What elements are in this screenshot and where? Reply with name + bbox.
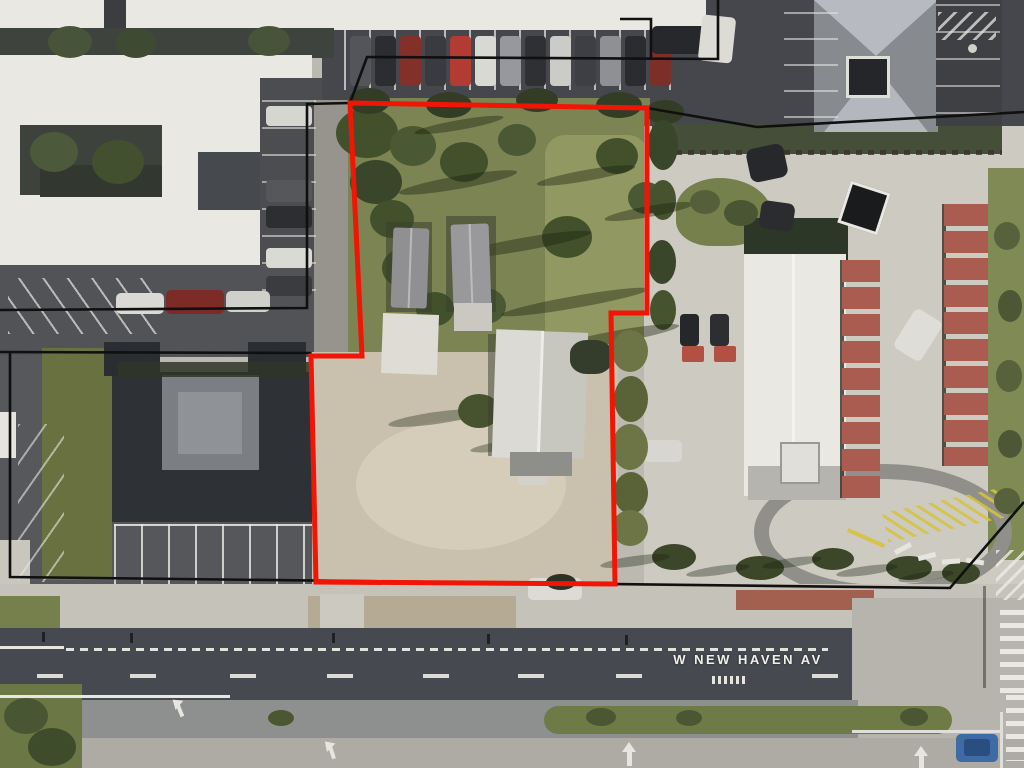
parked-car	[350, 36, 371, 86]
drive-thru-truck	[680, 314, 699, 346]
main-roof-left	[492, 329, 544, 459]
tree	[648, 120, 678, 170]
hedge-bush	[612, 330, 648, 372]
lane-dash	[423, 674, 449, 678]
hedge-bush	[570, 340, 612, 374]
parked-car	[625, 36, 646, 86]
tree	[498, 124, 536, 156]
parked-car	[266, 206, 312, 228]
suv	[745, 142, 789, 183]
parked-car	[525, 36, 546, 86]
handicap-mark	[968, 44, 977, 53]
aerial-parcel-map: W NEW HAVEN AV	[0, 0, 1024, 768]
bush	[900, 708, 928, 726]
tree	[48, 26, 92, 58]
hedge-bush	[614, 376, 648, 422]
step	[518, 476, 548, 485]
parked-car	[698, 14, 737, 63]
utility-pole	[983, 586, 986, 688]
bush	[998, 430, 1022, 458]
parked-car	[266, 276, 312, 296]
tree	[348, 88, 390, 114]
parked-car	[166, 290, 224, 314]
tree-shadow	[500, 283, 650, 321]
lane-dash	[518, 674, 544, 678]
road-post	[332, 633, 335, 643]
parked-car	[500, 36, 521, 86]
sprite-layer	[0, 0, 1024, 768]
parked-car	[475, 36, 496, 86]
lane-dash	[327, 674, 353, 678]
tree	[28, 728, 76, 766]
parked-car	[400, 36, 421, 86]
arrow-stem	[919, 755, 924, 768]
tree	[336, 108, 398, 158]
bush	[724, 200, 758, 226]
hedge-bush	[614, 472, 648, 514]
bush	[690, 190, 720, 214]
food-cart	[837, 181, 891, 236]
tree	[350, 160, 402, 204]
bush	[676, 710, 702, 726]
car-blue-top	[964, 739, 990, 756]
road-post	[487, 634, 490, 644]
parked-car	[550, 36, 571, 86]
parked-car	[375, 36, 396, 86]
tree	[426, 92, 472, 118]
bush	[994, 488, 1020, 514]
red-table	[682, 346, 704, 362]
lane-dash	[812, 674, 838, 678]
hedge-bush	[612, 510, 648, 546]
parked-car	[266, 180, 312, 202]
road-post	[42, 632, 45, 642]
tree	[648, 240, 676, 284]
tree-shadow	[686, 562, 751, 580]
concrete-pad	[454, 303, 492, 331]
tree	[248, 26, 290, 56]
tree	[596, 92, 642, 118]
parked-car	[758, 200, 796, 232]
tree-shadow	[536, 161, 636, 189]
tree	[546, 574, 576, 590]
parked-car	[266, 248, 312, 268]
tree	[516, 88, 558, 112]
arrow-stem	[328, 746, 336, 760]
hedge-bush	[612, 424, 648, 470]
curb-stop	[894, 542, 912, 555]
lane-dash	[37, 674, 63, 678]
tree	[116, 28, 156, 58]
parked-car	[116, 293, 164, 314]
parked-car	[425, 36, 446, 86]
road-post	[130, 633, 133, 643]
tree	[92, 140, 144, 184]
lane-dash	[616, 674, 642, 678]
red-table	[714, 346, 736, 362]
car-moving	[892, 307, 944, 363]
tree-shadow	[600, 551, 671, 571]
arrow-stem	[627, 751, 632, 766]
concrete-pad	[381, 313, 439, 375]
tree	[30, 132, 78, 172]
dumpster	[846, 56, 890, 98]
bush	[268, 710, 294, 726]
parked-car	[600, 36, 621, 86]
drive-thru-truck	[710, 314, 729, 346]
yellow-dash	[847, 528, 885, 548]
bush	[998, 290, 1022, 322]
parked-car	[266, 106, 312, 126]
lane-dash	[230, 674, 256, 678]
porch	[510, 452, 572, 476]
parked-car	[644, 440, 682, 462]
parked-car	[226, 291, 270, 312]
bush	[996, 360, 1022, 392]
lane-dash	[130, 674, 156, 678]
road-post	[625, 635, 628, 645]
parked-car	[450, 36, 471, 86]
bush	[994, 222, 1020, 250]
arrow-stem	[176, 704, 185, 718]
parked-car	[575, 36, 596, 86]
bush	[586, 708, 616, 726]
